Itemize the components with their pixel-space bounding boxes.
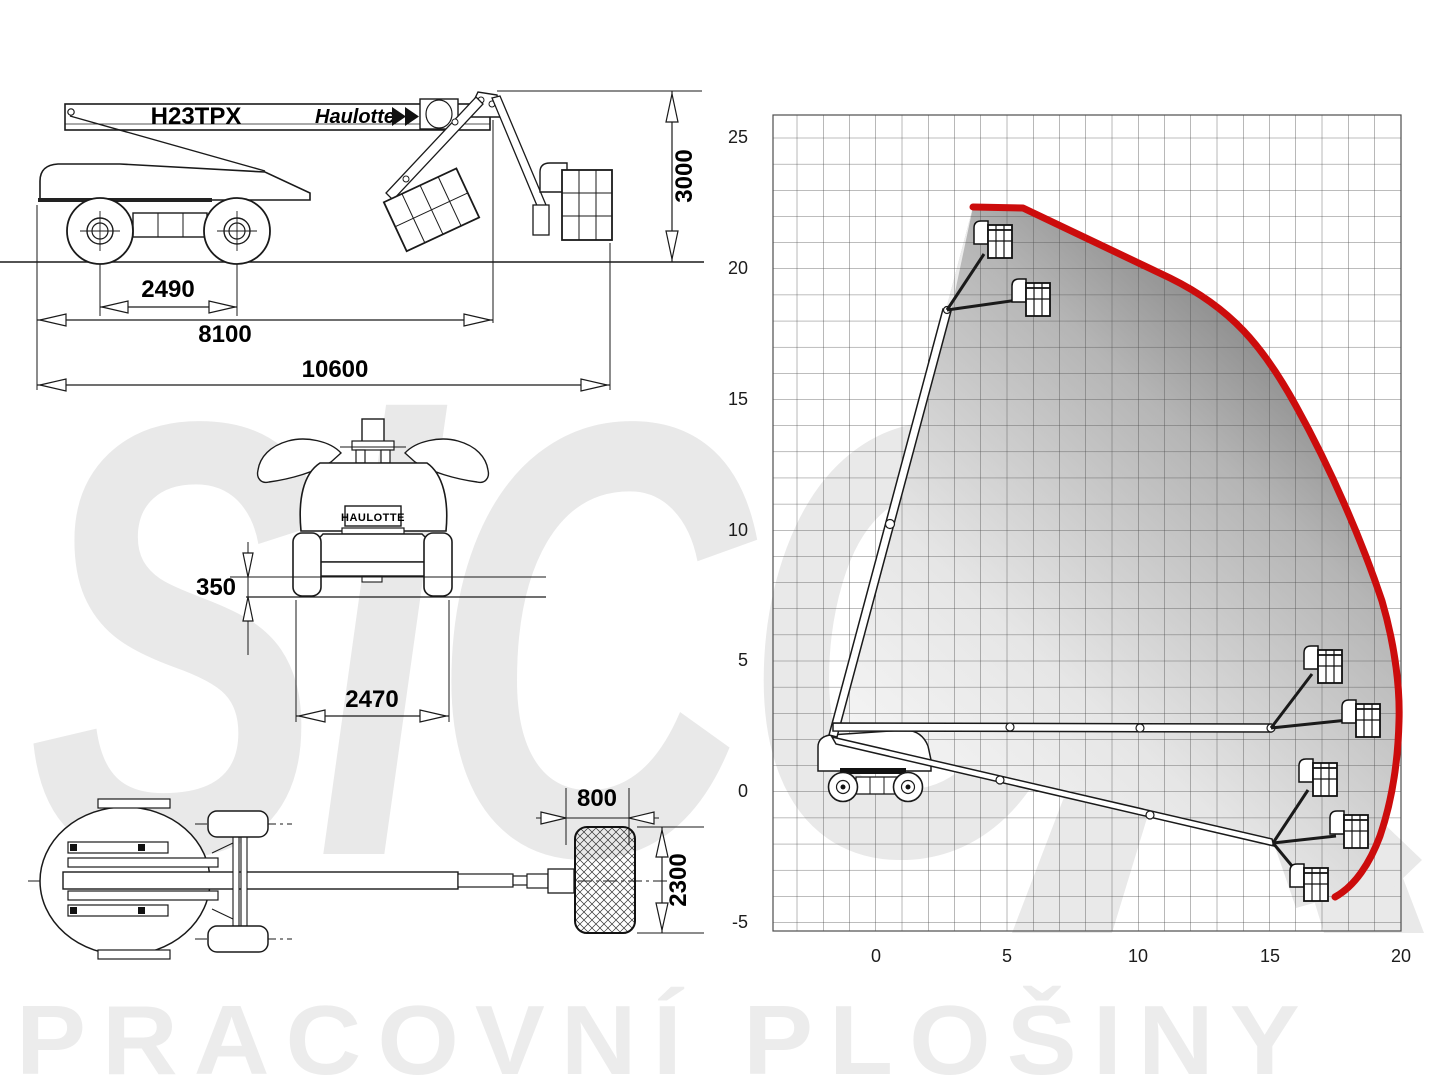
x-tick: 20	[1391, 946, 1411, 966]
chassis-front	[310, 534, 436, 562]
y-tick: 10	[728, 520, 748, 540]
dim-arrow	[420, 710, 446, 722]
wheel-top	[208, 811, 268, 837]
top-view-machine	[28, 799, 668, 959]
y-tick: 20	[728, 258, 748, 278]
y-tick: 15	[728, 389, 748, 409]
jib-arm-right	[492, 96, 546, 208]
svg-text:2300: 2300	[665, 853, 692, 906]
side-view-diagram: H23TPX Haulotte	[0, 75, 720, 410]
front-view-machine: HAULOTTE	[230, 419, 546, 597]
dim-arrow	[40, 314, 66, 326]
y-tick: 0	[738, 781, 748, 801]
svg-text:800: 800	[577, 785, 617, 812]
chassis-box	[133, 213, 207, 237]
dim-arrow	[581, 379, 607, 391]
boom-tip-hole	[68, 109, 74, 115]
dim-arrow	[243, 597, 253, 621]
haulotte-logo-text: Haulotte	[315, 106, 395, 128]
front-view-diagram: HAULOTTE 350 2470	[180, 405, 560, 735]
x-tick: 0	[871, 946, 881, 966]
platform-top	[575, 827, 635, 933]
front-wheel	[204, 198, 270, 264]
svg-text:2490: 2490	[141, 276, 194, 303]
x-tick: 10	[1128, 946, 1148, 966]
dim-arrow	[666, 94, 678, 122]
side-view-dimensions: 2490 8100 10600 3000	[37, 91, 702, 391]
dim-arrow	[102, 301, 128, 313]
dim-total-length: 10600	[37, 356, 610, 391]
dim-platform-length: 2300	[637, 827, 704, 933]
side-view-machine: H23TPX Haulotte	[0, 92, 704, 264]
rear-wheel	[67, 198, 133, 264]
haulotte-plate-text: HAULOTTE	[341, 512, 405, 524]
dim-arrow	[629, 812, 654, 824]
machine-body	[40, 164, 310, 200]
x-tick: 5	[1002, 946, 1012, 966]
y-axis-ticks: 25 20 15 10 5 0 -5	[728, 127, 748, 932]
basket-upright	[540, 163, 612, 240]
y-tick: 25	[728, 127, 748, 147]
dim-arrow	[656, 830, 668, 857]
svg-text:2470: 2470	[345, 686, 398, 713]
dim-wheelbase: 2490	[100, 264, 237, 316]
y-tick: -5	[732, 912, 748, 932]
dim-arrow	[666, 231, 678, 259]
svg-text:8100: 8100	[198, 321, 251, 348]
svg-text:3000: 3000	[671, 149, 698, 202]
dim-arrow	[299, 710, 325, 722]
dim-arrow	[209, 301, 235, 313]
platform-mount	[548, 869, 574, 893]
top-view-diagram: 800 2300	[15, 780, 715, 980]
dim-arrow	[541, 812, 566, 824]
x-axis-ticks: 0 5 10 15 20	[871, 946, 1411, 966]
dim-arrow	[40, 379, 66, 391]
boom-cross-section	[362, 419, 384, 443]
dim-pivot-length: 8100	[37, 314, 493, 348]
working-envelope-chart: 25 20 15 10 5 0 -5 0 5 10 15 20	[700, 100, 1440, 980]
axle	[233, 836, 239, 926]
dim-arrow	[464, 314, 490, 326]
wheel-top	[208, 926, 268, 952]
x-tick: 15	[1260, 946, 1280, 966]
spec-sheet: { "brand": { "model": "H23TPX", "name": …	[0, 0, 1440, 1080]
dim-width: 2470	[296, 600, 449, 722]
right-wheel-front	[424, 533, 452, 596]
y-tick: 5	[738, 650, 748, 670]
model-label: H23TPX	[151, 103, 242, 130]
svg-text:10600: 10600	[302, 356, 369, 383]
dim-arrow	[243, 553, 253, 577]
svg-text:350: 350	[196, 574, 236, 601]
left-wheel-front	[293, 533, 321, 596]
boom-top	[63, 872, 458, 889]
dim-clearance: 350	[196, 542, 253, 655]
